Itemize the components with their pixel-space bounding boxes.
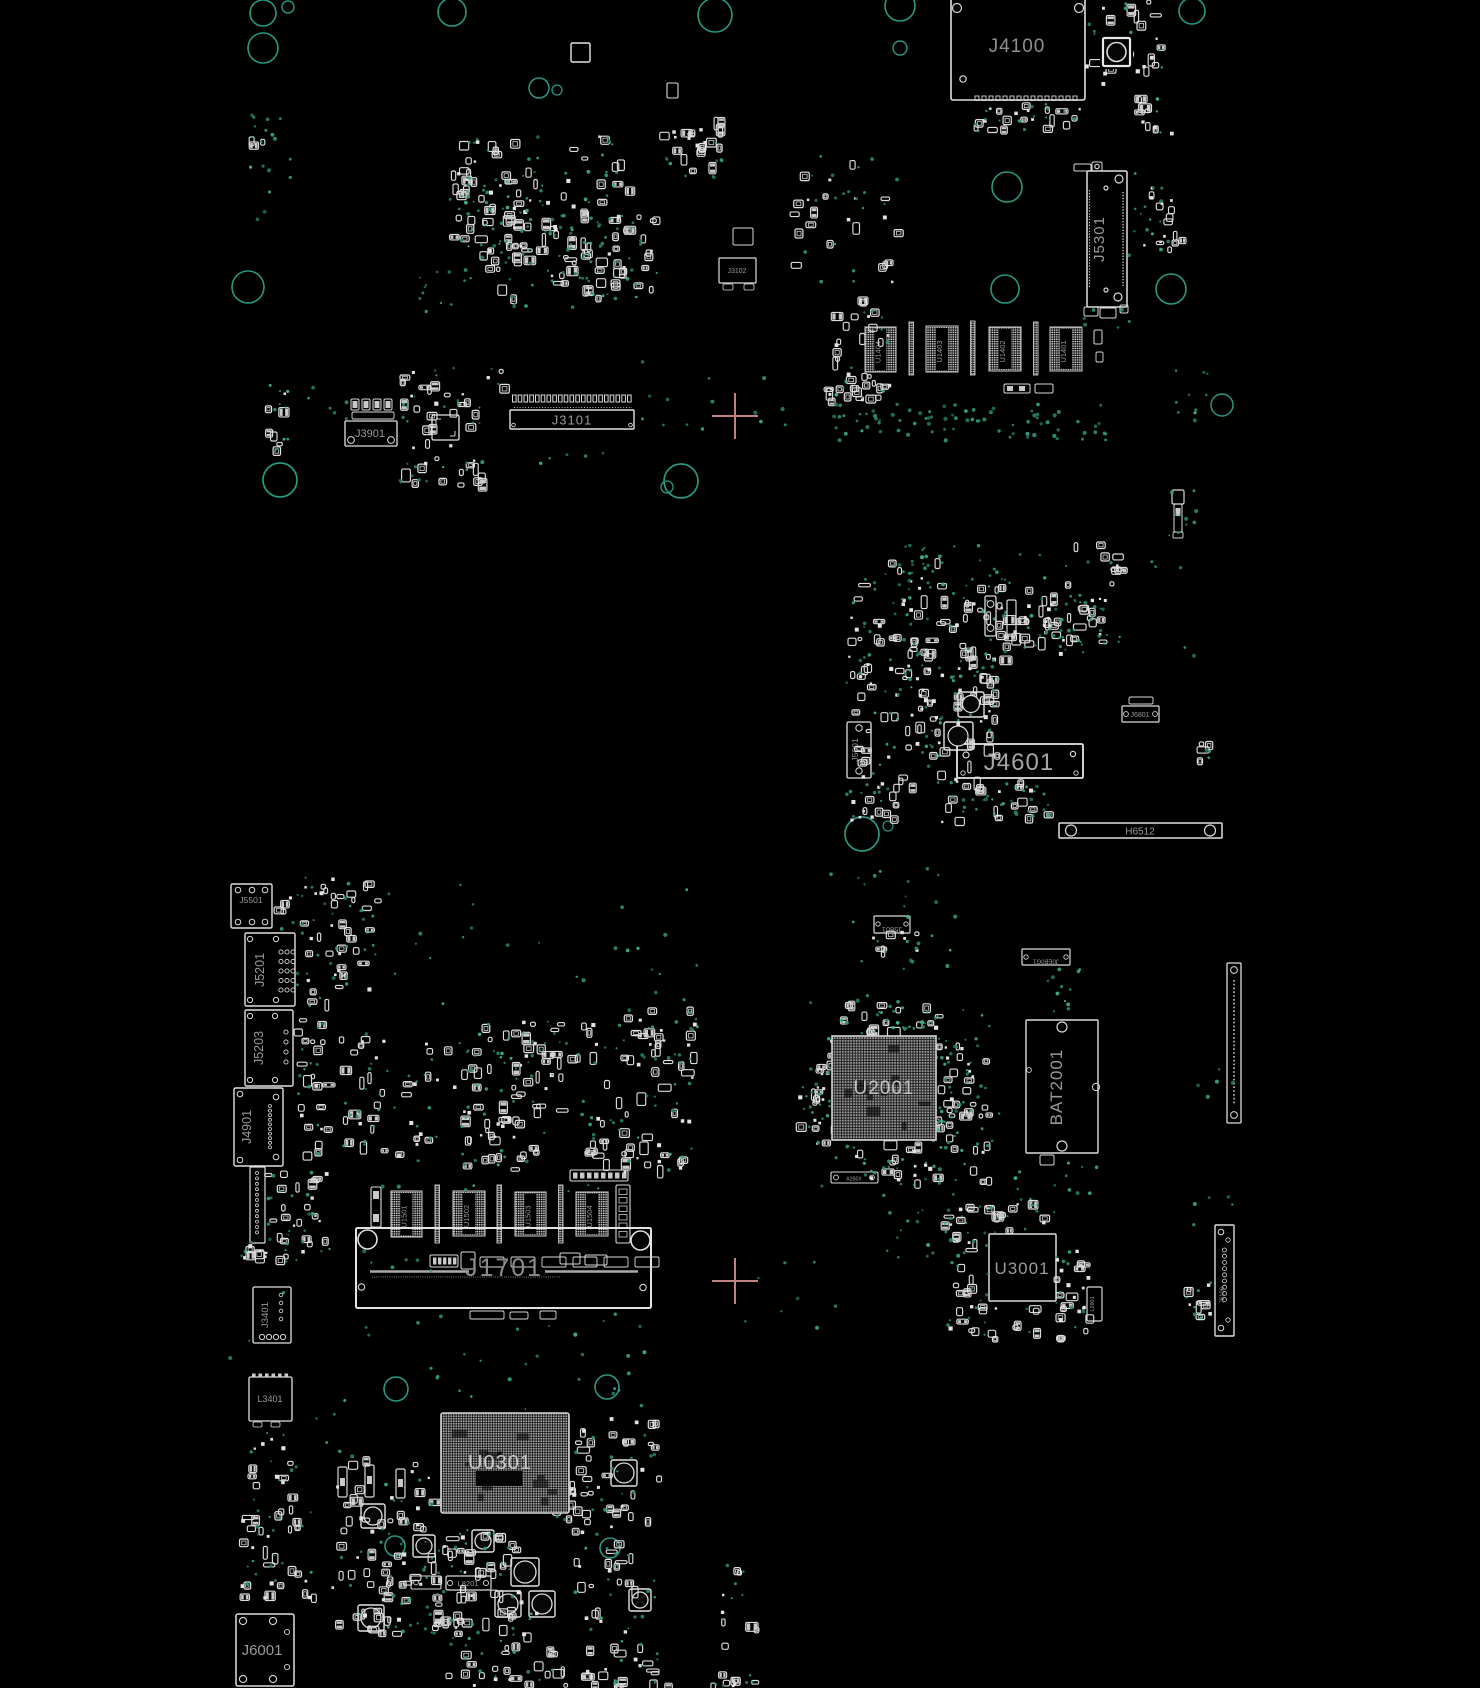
svg-text:L3401: L3401 bbox=[257, 1394, 282, 1404]
svg-text:J0EB0G1: J0EB0G1 bbox=[1032, 958, 1058, 964]
svg-text:L2801: L2801 bbox=[1090, 1296, 1096, 1311]
svg-text:U1503: U1503 bbox=[524, 1205, 533, 1227]
svg-text:J5106: J5106 bbox=[1220, 1286, 1226, 1303]
svg-text:J5203: J5203 bbox=[252, 1031, 266, 1065]
svg-text:J3101: J3101 bbox=[552, 413, 592, 428]
svg-text:J4100: J4100 bbox=[989, 36, 1046, 57]
svg-text:U1402: U1402 bbox=[998, 340, 1007, 362]
svg-text:J5201: J5201 bbox=[253, 953, 267, 987]
svg-text:J5301: J5301 bbox=[1091, 216, 1108, 262]
svg-text:U2001: U2001 bbox=[854, 1078, 915, 1099]
svg-text:A2B0X: A2B0X bbox=[846, 1177, 862, 1183]
svg-text:J4901: J4901 bbox=[240, 1110, 254, 1144]
svg-text:J6001: J6001 bbox=[242, 1642, 283, 1659]
svg-text:U0301: U0301 bbox=[468, 1452, 532, 1474]
svg-text:J3401: J3401 bbox=[260, 1302, 271, 1328]
svg-text:J5501: J5501 bbox=[239, 895, 262, 905]
svg-text:J3901: J3901 bbox=[355, 428, 385, 440]
svg-text:U1403: U1403 bbox=[935, 340, 944, 362]
svg-text:J1701: J1701 bbox=[465, 1254, 543, 1282]
svg-text:U3001: U3001 bbox=[994, 1259, 1049, 1278]
svg-text:BAT2001: BAT2001 bbox=[1047, 1049, 1066, 1126]
svg-text:J6801: J6801 bbox=[1130, 712, 1149, 719]
svg-text:U1501: U1501 bbox=[400, 1205, 409, 1227]
svg-text:J4601: J4601 bbox=[984, 749, 1054, 776]
svg-text:U1504: U1504 bbox=[585, 1205, 594, 1227]
svg-text:U1401: U1401 bbox=[1059, 340, 1068, 362]
svg-text:H6512: H6512 bbox=[1125, 827, 1155, 838]
svg-text:J3102: J3102 bbox=[727, 268, 746, 275]
svg-text:U1502: U1502 bbox=[462, 1205, 471, 1227]
